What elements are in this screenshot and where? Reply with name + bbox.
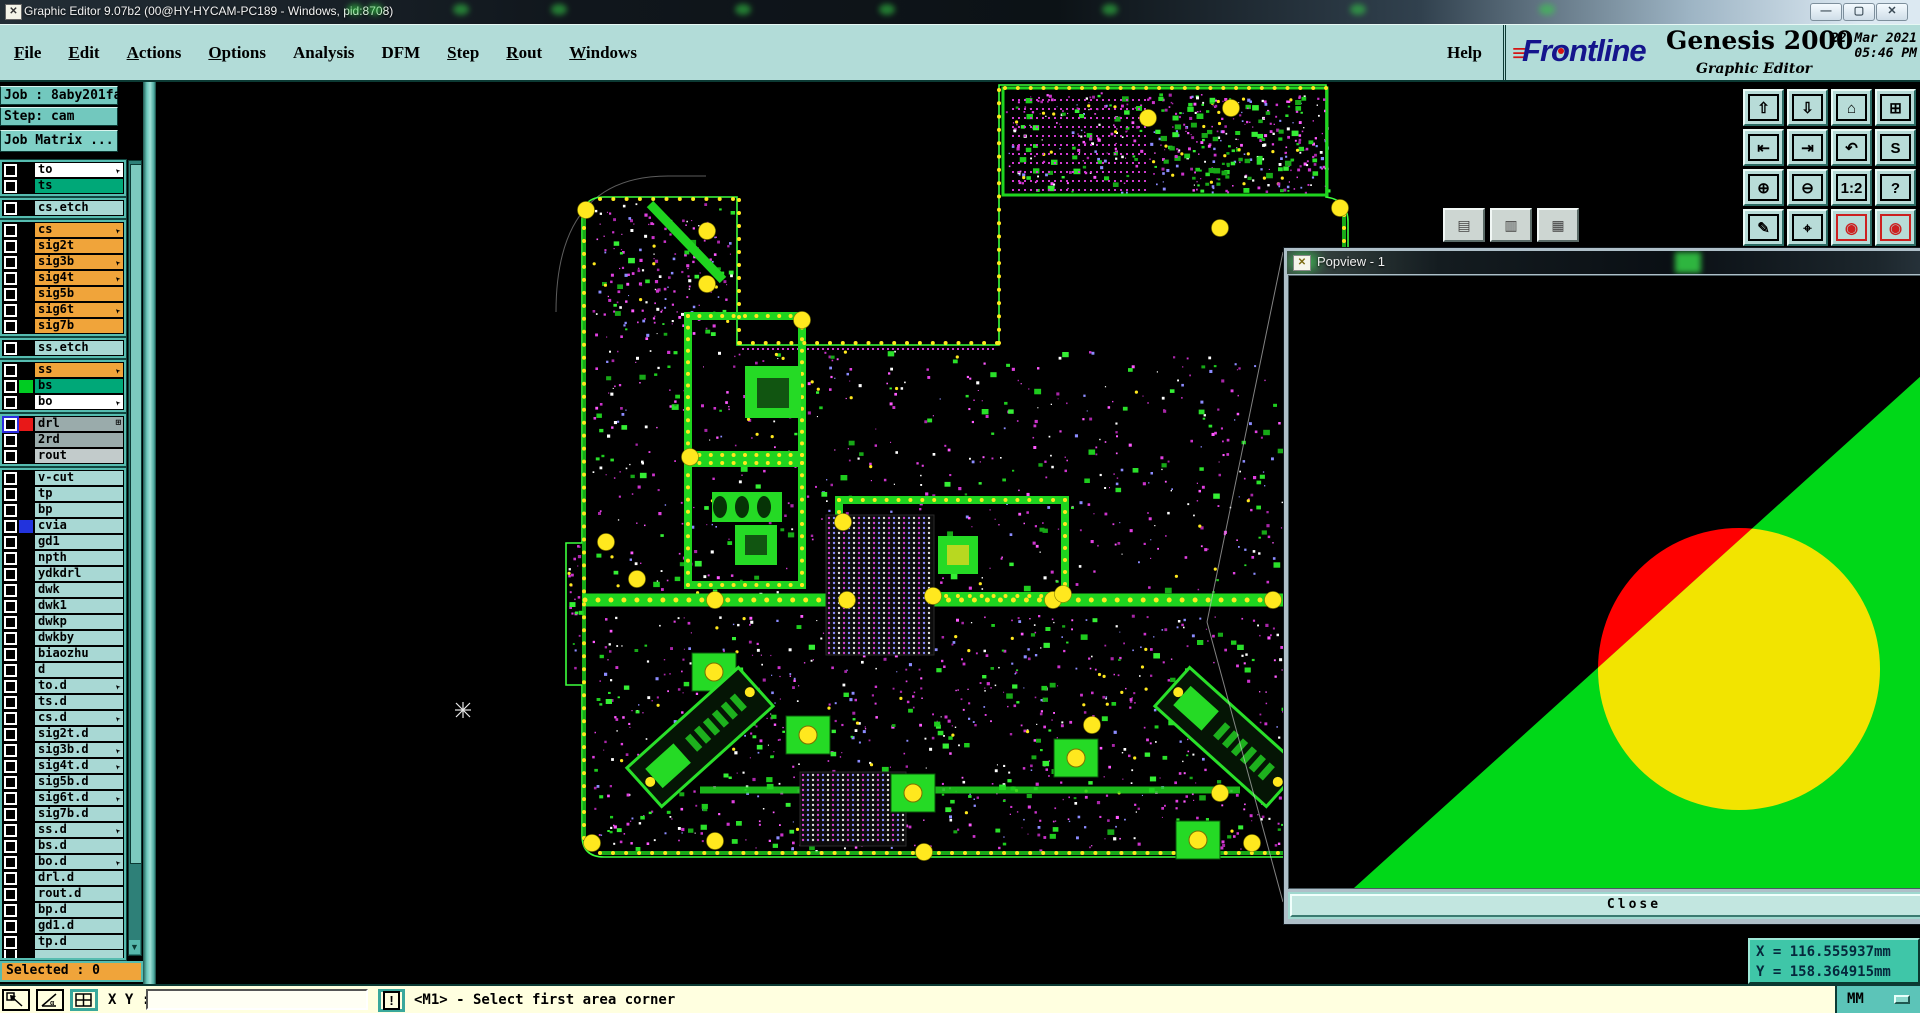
layer-color-swatch[interactable] xyxy=(19,600,33,613)
layer-color-swatch[interactable] xyxy=(19,164,33,177)
layer-name[interactable]: d xyxy=(34,662,124,678)
panel-divider[interactable] xyxy=(143,82,156,984)
home-view-icon: ⌂ xyxy=(1836,94,1867,121)
layer-color-swatch[interactable] xyxy=(19,616,33,629)
layer-name[interactable]: sig3b.d➤ xyxy=(34,742,124,758)
layer-color-swatch[interactable] xyxy=(19,584,33,597)
help-query-button[interactable]: ? xyxy=(1875,169,1916,206)
layer-row-sig3b[interactable]: sig3b➤ xyxy=(2,254,124,270)
layer-row-ss.d[interactable]: ss.d➤ xyxy=(2,822,124,838)
layer-row-sig7b[interactable]: sig7b xyxy=(2,318,124,334)
layer-row-v-cut[interactable]: v-cut xyxy=(2,470,124,486)
home-view-button[interactable]: ⌂ xyxy=(1831,89,1872,126)
panel-button-2[interactable]: ▥ xyxy=(1490,208,1532,242)
close-button[interactable]: ✕ xyxy=(1876,3,1908,21)
zoom-fit-icon: ⊕ xyxy=(1748,174,1779,201)
netlist-a-button[interactable]: ◉ xyxy=(1831,209,1872,246)
layer-checkbox[interactable] xyxy=(4,256,17,269)
layer-color-swatch[interactable] xyxy=(19,396,33,409)
layer-color-swatch[interactable] xyxy=(19,504,33,517)
menu-bar: FileEditActionsOptionsAnalysisDFMStepRou… xyxy=(0,24,1920,82)
layer-checkbox[interactable] xyxy=(4,304,17,317)
selected-count: Selected : 0 xyxy=(0,961,143,982)
layer-color-swatch[interactable] xyxy=(19,856,33,869)
layer-name[interactable]: ydkdrl xyxy=(34,566,124,582)
scale-1-2-button[interactable]: 1:2 xyxy=(1831,169,1872,206)
setup-tools-button[interactable]: ✎ xyxy=(1743,209,1784,246)
popview-graphic xyxy=(1289,276,1920,888)
netlist-a-icon: ◉ xyxy=(1836,214,1867,241)
layer-checkbox[interactable] xyxy=(4,288,17,301)
layer-row-rout[interactable]: rout xyxy=(2,448,124,464)
layer-row-sig6t[interactable]: sig6t➤ xyxy=(2,302,124,318)
scrollbar-down-arrow-icon[interactable]: ▼ xyxy=(129,940,140,954)
glass-reflection xyxy=(453,4,469,15)
layer-checkbox[interactable] xyxy=(4,504,17,517)
layer-name[interactable]: cs.etch xyxy=(34,200,124,216)
layer-name[interactable]: drl⊞ xyxy=(34,416,124,432)
layer-color-swatch[interactable] xyxy=(19,342,33,355)
layer-color-swatch[interactable] xyxy=(19,320,33,333)
layer-row-rout.d[interactable]: rout.d xyxy=(2,886,124,902)
layer-name[interactable]: npth xyxy=(34,550,124,566)
layer-row-sig6t.d[interactable]: sig6t.d➤ xyxy=(2,790,124,806)
measure-angle-icon: α xyxy=(40,992,60,1008)
layer-checkbox[interactable] xyxy=(4,600,17,613)
layer-name[interactable]: drl.d xyxy=(34,870,124,886)
job-label: Job : 8aby201fa0 xyxy=(0,86,118,105)
layer-color-swatch[interactable] xyxy=(19,304,33,317)
layer-color-swatch[interactable] xyxy=(19,728,33,741)
serpentine-icon: S xyxy=(1880,134,1911,161)
serpentine-button[interactable]: S xyxy=(1875,129,1916,166)
layer-row-gd1.d[interactable]: gd1.d xyxy=(2,918,124,934)
layer-row-sig3b.d[interactable]: sig3b.d➤ xyxy=(2,742,124,758)
app-icon: ✕ xyxy=(5,4,22,20)
layer-row-sig2t[interactable]: sig2t xyxy=(2,238,124,254)
layer-color-swatch[interactable] xyxy=(19,202,33,215)
layer-row-bs.d[interactable]: bs.d xyxy=(2,838,124,854)
layer-row-sig5b.d[interactable]: sig5b.d xyxy=(2,774,124,790)
layer-name[interactable]: sig5b xyxy=(34,286,124,302)
zoom-out-button[interactable]: ⇩ xyxy=(1787,89,1828,126)
layer-checkbox[interactable] xyxy=(4,224,17,237)
layer-color-swatch[interactable] xyxy=(19,256,33,269)
layer-name[interactable]: bo.d➤ xyxy=(34,854,124,870)
layer-name[interactable]: dwkp xyxy=(34,614,124,630)
layer-color-swatch[interactable] xyxy=(19,520,33,533)
layer-checkbox[interactable] xyxy=(4,488,17,501)
layer-name[interactable]: sig4t➤ xyxy=(34,270,124,286)
area-select-icon xyxy=(6,992,26,1008)
alert-button[interactable]: ! xyxy=(378,989,405,1012)
layer-name[interactable]: dwkby xyxy=(34,630,124,646)
layer-color-swatch[interactable] xyxy=(19,920,33,933)
layer-color-swatch[interactable] xyxy=(19,488,33,501)
layer-row-sig2t.d[interactable]: sig2t.d xyxy=(2,726,124,742)
layer-color-swatch[interactable] xyxy=(19,664,33,677)
popview-button-row: Close xyxy=(1288,892,1920,919)
layer-checkbox[interactable] xyxy=(4,632,17,645)
layer-name[interactable]: 2rd xyxy=(34,432,124,448)
layer-color-swatch[interactable] xyxy=(19,760,33,773)
job-matrix-button[interactable]: Job Matrix ... xyxy=(0,130,118,152)
layer-row-2rd[interactable]: 2rd xyxy=(2,432,124,448)
panel-button-3[interactable]: ▦ xyxy=(1537,208,1579,242)
menu-edit[interactable]: Edit xyxy=(68,43,99,63)
layer-name[interactable]: dwk xyxy=(34,582,124,598)
layer-row-cs[interactable]: cs➤ xyxy=(2,222,124,238)
layer-name[interactable]: sig2t.d xyxy=(34,726,124,742)
layer-name[interactable]: bs xyxy=(34,378,124,394)
layer-color-swatch[interactable] xyxy=(19,224,33,237)
layer-checkbox[interactable] xyxy=(4,472,17,485)
maximize-button[interactable]: ▢ xyxy=(1843,3,1875,21)
glass-reflection xyxy=(1539,4,1555,15)
layer-row-dwkby[interactable]: dwkby xyxy=(2,630,124,646)
layer-row-tp[interactable]: tp xyxy=(2,486,124,502)
glass-reflection xyxy=(1350,4,1366,15)
layer-color-swatch[interactable] xyxy=(19,808,33,821)
layer-flag-icon: ➤ xyxy=(112,223,124,236)
measure-angle-button[interactable]: α xyxy=(36,989,64,1011)
zoom-in-button[interactable]: ⇧ xyxy=(1743,89,1784,126)
command-prompt-text: <M1> - Select first area corner xyxy=(414,992,675,1008)
menu-help[interactable]: Help xyxy=(1447,43,1482,63)
layer-name[interactable]: cvia xyxy=(34,518,124,534)
layer-name[interactable]: tp xyxy=(34,486,124,502)
layer-checkbox[interactable] xyxy=(4,760,17,773)
layer-checkbox[interactable] xyxy=(4,450,17,463)
layer-color-swatch[interactable] xyxy=(19,648,33,661)
popview-titlebar[interactable]: ✕ Popview - 1 xyxy=(1287,251,1920,274)
layer-checkbox[interactable] xyxy=(4,856,17,869)
layer-row-drl.d[interactable]: drl.d xyxy=(2,870,124,886)
layer-flag-icon: ➤ xyxy=(112,271,124,284)
layer-checkbox[interactable] xyxy=(4,568,17,581)
layer-color-swatch[interactable] xyxy=(19,180,33,193)
layer-name[interactable]: ss.etch xyxy=(34,340,124,356)
probe-icon: ⌖ xyxy=(1792,214,1823,241)
minimize-button[interactable]: — xyxy=(1810,3,1842,21)
layer-color-swatch[interactable] xyxy=(19,776,33,789)
layer-color-swatch[interactable] xyxy=(19,872,33,885)
layer-name[interactable]: gd1 xyxy=(34,534,124,550)
layer-group: ss➤bsbo➤ xyxy=(0,360,126,412)
layer-name[interactable]: to.d➤ xyxy=(34,678,124,694)
layer-color-swatch[interactable] xyxy=(19,380,33,393)
layer-checkbox[interactable] xyxy=(4,950,17,958)
layer-name[interactable]: tp.d xyxy=(34,934,124,950)
layer-name[interactable]: ts xyxy=(34,178,124,194)
layer-flag-icon: ➤ xyxy=(112,791,124,804)
layer-checkbox[interactable] xyxy=(4,728,17,741)
layer-name[interactable]: cs.d➤ xyxy=(34,710,124,726)
layer-row-sig4t.d[interactable]: sig4t.d➤ xyxy=(2,758,124,774)
layer-color-swatch[interactable] xyxy=(19,418,33,431)
zoom-center-icon: ⊖ xyxy=(1792,174,1823,201)
cursor-coordinates: X = 116.555937mm Y = 158.364915mm xyxy=(1748,938,1920,984)
layer-name[interactable]: gd1.d xyxy=(34,918,124,934)
layer-row-bs[interactable]: bs xyxy=(2,378,124,394)
probe-button[interactable]: ⌖ xyxy=(1787,209,1828,246)
popview-content[interactable] xyxy=(1288,275,1920,889)
grid-icon xyxy=(75,993,93,1008)
pan-right-icon: ⇥ xyxy=(1792,134,1823,161)
layer-row-ts.d[interactable]: ts.d xyxy=(2,694,124,710)
layer-row-to.d[interactable]: to.d➤ xyxy=(2,678,124,694)
layer-name[interactable]: sig6t.d➤ xyxy=(34,790,124,806)
layer-color-swatch[interactable] xyxy=(19,434,33,447)
layer-name[interactable]: sig2t xyxy=(34,238,124,254)
layer-checkbox[interactable] xyxy=(4,648,17,661)
layer-name[interactable]: sig6t➤ xyxy=(34,302,124,318)
menu-options[interactable]: Options xyxy=(208,43,266,63)
popview-title: Popview - 1 xyxy=(1317,254,1385,269)
menu-step[interactable]: Step xyxy=(447,43,479,63)
layer-name[interactable]: to➤ xyxy=(34,162,124,178)
layer-name[interactable]: ts.d xyxy=(34,694,124,710)
grid-snap-button[interactable] xyxy=(70,989,98,1011)
zoom-center-button[interactable]: ⊖ xyxy=(1787,169,1828,206)
window-titlebar: ✕ Graphic Editor 9.07b2 (00@HY-HYCAM-PC1… xyxy=(0,0,1920,24)
scrollbar-thumb[interactable] xyxy=(130,164,142,864)
layer-checkbox[interactable] xyxy=(4,164,17,177)
layer-row-to[interactable]: to➤ xyxy=(2,162,124,178)
layer-color-swatch[interactable] xyxy=(19,472,33,485)
layer-name[interactable]: v-cut xyxy=(34,470,124,486)
layer-checkbox[interactable] xyxy=(4,364,17,377)
layer-row-ydkdrl[interactable]: ydkdrl xyxy=(2,566,124,582)
layer-checkbox[interactable] xyxy=(4,320,17,333)
layer-row-dwk[interactable]: dwk xyxy=(2,582,124,598)
menu-rout[interactable]: Rout xyxy=(506,43,542,63)
layer-name[interactable]: rout.d xyxy=(34,886,124,902)
layer-group: cs➤sig2tsig3b➤sig4t➤sig5bsig6t➤sig7b xyxy=(0,220,126,336)
layer-checkbox[interactable] xyxy=(4,180,17,193)
layer-name[interactable]: ss.d➤ xyxy=(34,822,124,838)
layer-checkbox[interactable] xyxy=(4,744,17,757)
layer-list: to➤tscs.etchcs➤sig2tsig3b➤sig4t➤sig5bsig… xyxy=(0,160,126,962)
layer-row-cs.d[interactable]: cs.d➤ xyxy=(2,710,124,726)
layer-color-swatch[interactable] xyxy=(19,272,33,285)
xy-coordinate-input[interactable] xyxy=(146,989,368,1010)
layer-color-swatch[interactable] xyxy=(19,696,33,709)
tile-windows-icon: ⊞ xyxy=(1880,94,1911,121)
layer-checkbox[interactable] xyxy=(4,680,17,693)
zoom-out-icon: ⇩ xyxy=(1792,94,1823,121)
layer-name[interactable]: cs➤ xyxy=(34,222,124,238)
tile-windows-button[interactable]: ⊞ xyxy=(1875,89,1916,126)
layer-flag-icon: ➤ xyxy=(112,711,124,724)
layer-color-swatch[interactable] xyxy=(19,888,33,901)
layer-name[interactable]: sig5b.d xyxy=(34,774,124,790)
layer-color-swatch[interactable] xyxy=(19,792,33,805)
layer-color-swatch[interactable] xyxy=(19,568,33,581)
datetime: 22 Mar 202105:46 PM xyxy=(1805,31,1917,61)
panel-button-1[interactable]: ▤ xyxy=(1443,208,1485,242)
layer-checkbox[interactable] xyxy=(4,776,17,789)
layer-color-swatch[interactable] xyxy=(19,950,33,958)
layer-name[interactable]: biaozhu xyxy=(34,646,124,662)
layer-color-swatch[interactable] xyxy=(19,904,33,917)
popview-close-button[interactable]: Close xyxy=(1290,894,1920,917)
xy-label: X Y : xyxy=(108,992,150,1008)
step-label: Step: cam xyxy=(0,107,118,126)
setup-tools-icon: ✎ xyxy=(1748,214,1779,241)
layer-checkbox[interactable] xyxy=(4,520,17,533)
layer-checkbox[interactable] xyxy=(4,434,17,447)
layer-name[interactable]: bo➤ xyxy=(34,394,124,410)
layer-color-swatch[interactable] xyxy=(19,632,33,645)
layer-color-swatch[interactable] xyxy=(19,680,33,693)
layer-checkbox[interactable] xyxy=(4,536,17,549)
layer-name[interactable]: bp.d xyxy=(34,902,124,918)
zoom-in-icon: ⇧ xyxy=(1748,94,1779,121)
undo-view-icon: ↶ xyxy=(1836,134,1867,161)
netlist-b-icon: ◉ xyxy=(1880,214,1911,241)
layer-checkbox[interactable] xyxy=(4,664,17,677)
layer-row-gd1[interactable]: gd1 xyxy=(2,534,124,550)
frontline-logo: ≡Frontline xyxy=(1512,33,1646,69)
layer-flag-icon: ➤ xyxy=(112,303,124,316)
pan-left-button[interactable]: ⇤ xyxy=(1743,129,1784,166)
layer-flag-icon: ➤ xyxy=(112,823,124,836)
layer-name[interactable]: dwk1 xyxy=(34,598,124,614)
layer-color-swatch[interactable] xyxy=(19,536,33,549)
layer-checkbox[interactable] xyxy=(4,696,17,709)
layer-checkbox[interactable] xyxy=(4,202,17,215)
layer-checkbox[interactable] xyxy=(4,584,17,597)
layer-row-biaozhu[interactable]: biaozhu xyxy=(2,646,124,662)
layer-name[interactable]: bp xyxy=(34,502,124,518)
layer-row-sig5b[interactable]: sig5b xyxy=(2,286,124,302)
glass-reflection xyxy=(367,4,383,15)
layer-row-bp.d[interactable]: bp.d xyxy=(2,902,124,918)
layer-row-d[interactable]: d xyxy=(2,662,124,678)
menu-actions[interactable]: Actions xyxy=(127,43,182,63)
netlist-b-button[interactable]: ◉ xyxy=(1875,209,1916,246)
floating-buttons: ▤▥▦ xyxy=(1443,208,1579,242)
layer-row-tp.d[interactable]: tp.d xyxy=(2,934,124,950)
layer-color-swatch[interactable] xyxy=(19,552,33,565)
pan-right-button[interactable]: ⇥ xyxy=(1787,129,1828,166)
layer-group: cs.etch xyxy=(0,198,126,218)
menu-analysis[interactable]: Analysis xyxy=(293,43,354,63)
layer-color-swatch[interactable] xyxy=(19,936,33,949)
layer-row-bo[interactable]: bo➤ xyxy=(2,394,124,410)
layer-name[interactable]: sig7b xyxy=(34,318,124,334)
layer-row-bo.d[interactable]: bo.d➤ xyxy=(2,854,124,870)
layer-row-npth[interactable]: npth xyxy=(2,550,124,566)
layer-checkbox[interactable] xyxy=(4,840,17,853)
layer-color-swatch[interactable] xyxy=(19,288,33,301)
menu-windows[interactable]: Windows xyxy=(569,43,637,63)
glass-reflection xyxy=(879,4,895,15)
layer-name[interactable]: sig4t.d➤ xyxy=(34,758,124,774)
layer-group: ss.etch xyxy=(0,338,126,358)
layer-name[interactable]: ss➤ xyxy=(34,362,124,378)
layer-color-swatch[interactable] xyxy=(19,712,33,725)
layer-checkbox[interactable] xyxy=(4,888,17,901)
pan-left-icon: ⇤ xyxy=(1748,134,1779,161)
zoom-fit-button[interactable]: ⊕ xyxy=(1743,169,1784,206)
popview-window-icon: ✕ xyxy=(1293,255,1311,271)
layer-checkbox[interactable] xyxy=(4,240,17,253)
layer-color-swatch[interactable] xyxy=(19,450,33,463)
layer-checkbox[interactable] xyxy=(4,380,17,393)
menu-dfm[interactable]: DFM xyxy=(381,43,420,63)
layer-name[interactable]: rout xyxy=(34,448,124,464)
layer-color-swatch[interactable] xyxy=(19,840,33,853)
layer-color-swatch[interactable] xyxy=(19,240,33,253)
layer-group: v-cuttpbpcviagd1npthydkdrldwkdwk1dwkpdwk… xyxy=(0,468,126,960)
status-bar: α X Y : ! <M1> - Select first area corne… xyxy=(0,984,1920,1013)
layer-row-ts[interactable]: ts xyxy=(2,178,124,194)
units-label: MM xyxy=(1847,991,1864,1007)
layer-row-dwk1[interactable]: dwk1 xyxy=(2,598,124,614)
layer-checkbox[interactable] xyxy=(4,342,17,355)
area-select-button[interactable] xyxy=(2,989,30,1011)
layer-checkbox[interactable] xyxy=(4,920,17,933)
brand-panel: ≡Frontline Genesis 2000 Graphic Editor 2… xyxy=(1503,25,1920,80)
layer-row-drl[interactable]: drl⊞ xyxy=(2,416,124,432)
layer-name[interactable]: sig3b➤ xyxy=(34,254,124,270)
layer-checkbox[interactable] xyxy=(4,872,17,885)
layer-color-swatch[interactable] xyxy=(19,364,33,377)
layer-checkbox[interactable] xyxy=(4,272,17,285)
glass-reflection xyxy=(1102,4,1118,15)
units-grip-icon xyxy=(1894,995,1910,1004)
layer-row-sig7b.d[interactable]: sig7b.d xyxy=(2,806,124,822)
layer-row-dwkp[interactable]: dwkp xyxy=(2,614,124,630)
layer-list-scrollbar[interactable]: ▼ xyxy=(128,160,142,956)
layer-checkbox[interactable] xyxy=(4,936,17,949)
layer-checkbox[interactable] xyxy=(4,904,17,917)
layer-row-bp[interactable]: bp xyxy=(2,502,124,518)
layer-flag-icon: ➤ xyxy=(112,395,124,408)
layer-checkbox[interactable] xyxy=(4,396,17,409)
glass-reflection xyxy=(347,4,363,15)
view-toolbar: ⇧⇩⌂⊞⇤⇥↶S⊕⊖1:2?✎⌖◉◉ xyxy=(1742,88,1920,248)
layer-row-ss[interactable]: ss➤ xyxy=(2,362,124,378)
glass-reflection xyxy=(551,4,567,15)
layer-checkbox[interactable] xyxy=(4,552,17,565)
layer-group: to➤ts xyxy=(0,160,126,196)
layer-row-cs.etch[interactable]: cs.etch xyxy=(2,200,124,216)
layer-color-swatch[interactable] xyxy=(19,744,33,757)
layer-color-swatch[interactable] xyxy=(19,824,33,837)
layer-name[interactable]: sig7b.d xyxy=(34,806,124,822)
layer-checkbox[interactable] xyxy=(4,792,17,805)
layer-name[interactable] xyxy=(34,950,124,958)
layer-checkbox[interactable] xyxy=(4,712,17,725)
layer-flag-icon: ➤ xyxy=(112,163,124,176)
layer-row-sig4t[interactable]: sig4t➤ xyxy=(2,270,124,286)
units-toggle[interactable]: MM xyxy=(1835,986,1920,1013)
menu-file[interactable]: File xyxy=(14,43,41,63)
layer-checkbox[interactable] xyxy=(4,808,17,821)
layer-checkbox[interactable] xyxy=(4,824,17,837)
help-query-icon: ? xyxy=(1880,174,1911,201)
layer-row-cvia[interactable]: cvia xyxy=(2,518,124,534)
layer-checkbox[interactable] xyxy=(4,418,17,431)
undo-view-button[interactable]: ↶ xyxy=(1831,129,1872,166)
layer-row-ss.etch[interactable]: ss.etch xyxy=(2,340,124,356)
layer-name[interactable]: bs.d xyxy=(34,838,124,854)
layer-row-partial[interactable] xyxy=(2,950,124,958)
layer-checkbox[interactable] xyxy=(4,616,17,629)
